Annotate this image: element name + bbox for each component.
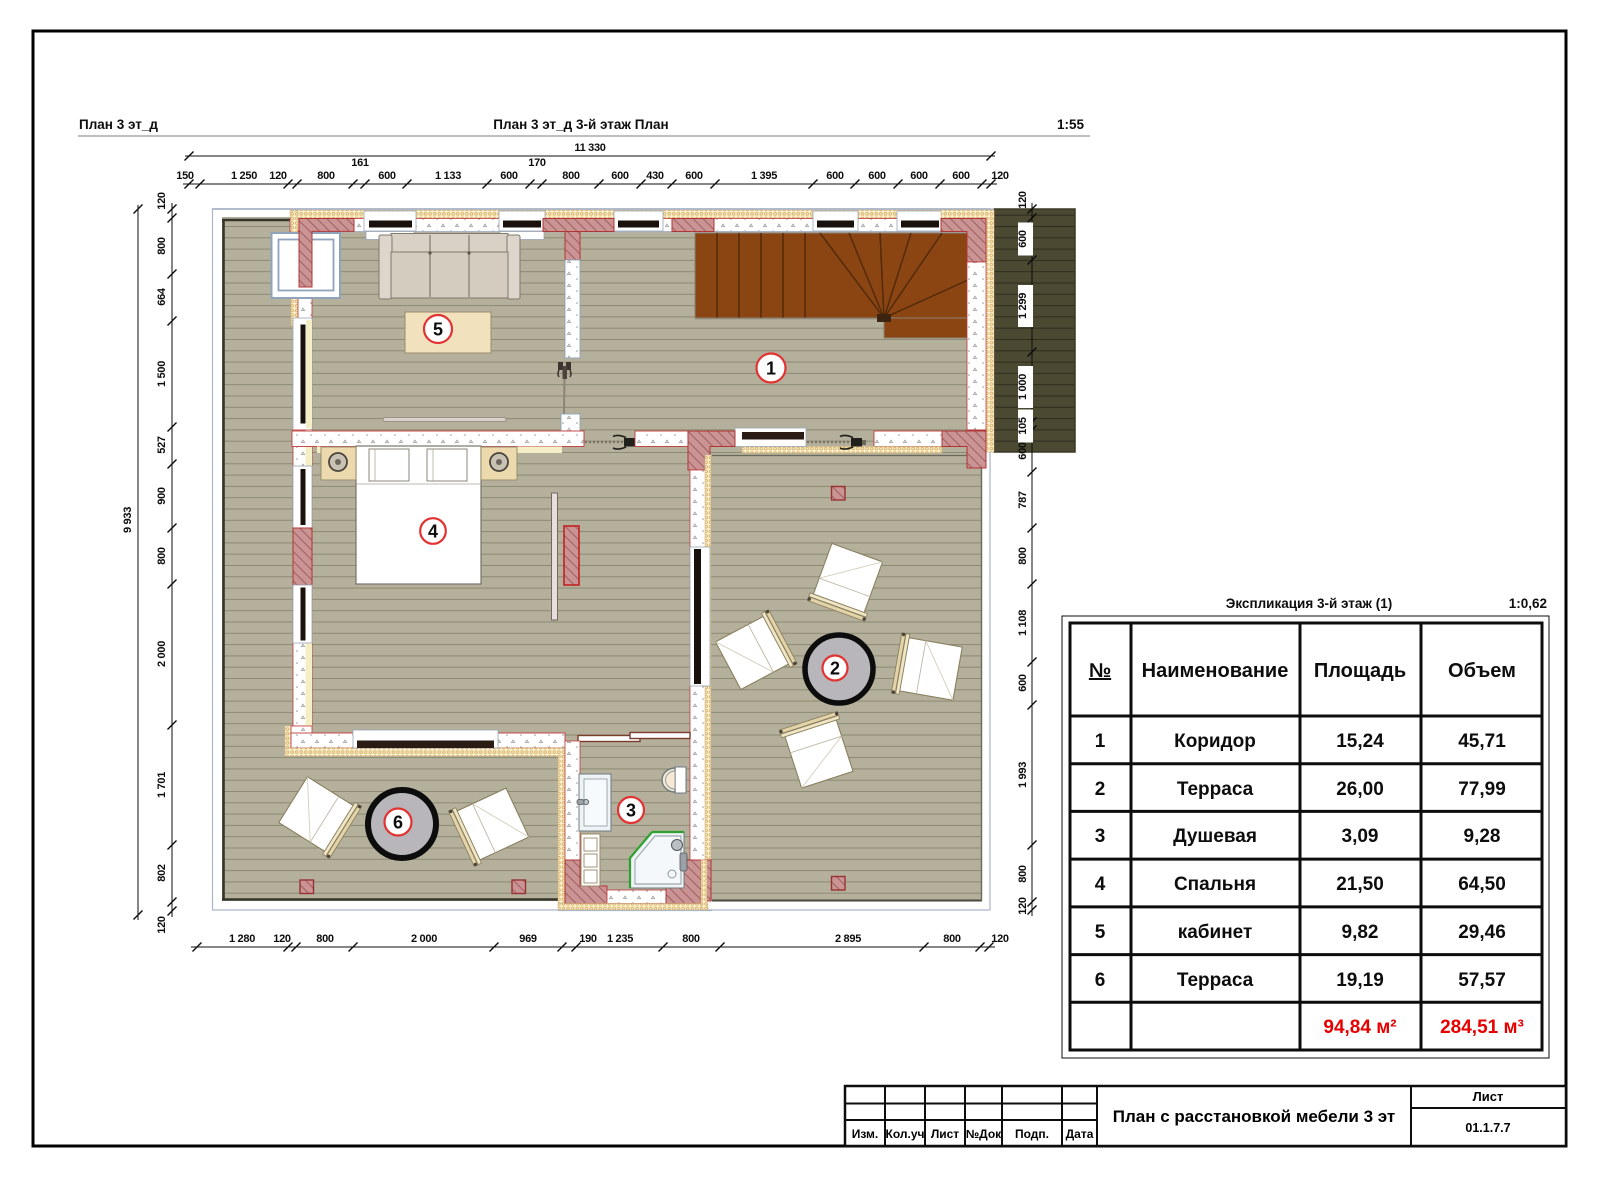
svg-text:120: 120 [156,192,168,210]
svg-text:900: 900 [156,487,168,505]
svg-text:800: 800 [317,170,335,182]
svg-text:15,24: 15,24 [1336,731,1384,752]
svg-text:Площадь: Площадь [1314,660,1406,682]
svg-text:120: 120 [1017,897,1029,915]
svg-text:29,46: 29,46 [1458,922,1506,943]
svg-text:Лист: Лист [931,1127,959,1141]
svg-text:Кол.уч: Кол.уч [886,1127,925,1141]
svg-text:800: 800 [156,547,168,565]
svg-text:120: 120 [1017,191,1029,209]
svg-text:800: 800 [1017,865,1029,883]
svg-text:77,99: 77,99 [1458,779,1506,800]
svg-text:1 235: 1 235 [607,933,633,945]
svg-text:9,82: 9,82 [1342,922,1379,943]
svg-text:600: 600 [1017,230,1029,248]
svg-text:3,09: 3,09 [1342,826,1379,847]
svg-text:План с расстановкой мебели 3 э: План с расстановкой мебели 3 эт [1113,1107,1396,1126]
svg-text:Экспликация 3-й этаж (1): Экспликация 3-й этаж (1) [1226,596,1392,611]
svg-text:11 330: 11 330 [574,142,605,154]
svg-text:800: 800 [156,237,168,255]
svg-text:1:55: 1:55 [1057,117,1085,132]
svg-text:Терраса: Терраса [1177,779,1254,800]
svg-text:2: 2 [830,659,840,679]
svg-text:Наименование: Наименование [1142,660,1289,682]
svg-text:№Док: №Док [966,1127,1002,1141]
svg-text:19,19: 19,19 [1336,970,1384,991]
svg-text:150: 150 [176,170,194,182]
svg-text:4: 4 [428,522,438,542]
svg-text:5: 5 [1095,922,1106,943]
svg-text:120: 120 [991,170,1009,182]
svg-text:802: 802 [156,864,168,882]
svg-text:6: 6 [393,813,403,833]
svg-text:57,57: 57,57 [1458,970,1506,991]
svg-text:2 000: 2 000 [156,641,168,667]
svg-text:Спальня: Спальня [1174,874,1256,895]
svg-text:21,50: 21,50 [1336,874,1384,895]
svg-text:1: 1 [766,359,776,379]
svg-text:кабинет: кабинет [1178,922,1253,943]
svg-text:01.1.7.7: 01.1.7.7 [1465,1121,1510,1135]
svg-text:5: 5 [433,320,443,340]
svg-text:600: 600 [868,170,886,182]
svg-text:1: 1 [1095,731,1106,752]
svg-text:170: 170 [528,157,546,169]
svg-text:Терраса: Терраса [1177,970,1254,991]
svg-text:4: 4 [1095,874,1106,895]
svg-text:64,50: 64,50 [1458,874,1506,895]
svg-text:3: 3 [1095,826,1106,847]
svg-text:1 299: 1 299 [1017,293,1029,319]
svg-text:600: 600 [1017,442,1029,460]
svg-text:120: 120 [269,170,287,182]
svg-text:2 895: 2 895 [835,933,861,945]
svg-text:800: 800 [1017,547,1029,565]
svg-text:120: 120 [156,916,168,934]
svg-text:94,84 м²: 94,84 м² [1323,1017,1396,1038]
svg-text:800: 800 [943,933,961,945]
svg-text:2: 2 [1095,779,1106,800]
svg-text:Подп.: Подп. [1015,1127,1049,1141]
svg-text:План 3 эт_д 3-й этаж План: План 3 эт_д 3-й этаж План [493,117,668,132]
svg-text:600: 600 [685,170,703,182]
svg-text:600: 600 [1017,674,1029,692]
svg-text:969: 969 [519,933,537,945]
svg-text:161: 161 [351,157,369,169]
svg-text:2 000: 2 000 [411,933,437,945]
svg-text:120: 120 [273,933,291,945]
svg-text:1 395: 1 395 [751,170,777,182]
svg-text:120: 120 [991,933,1009,945]
svg-text:664: 664 [156,287,168,306]
svg-text:527: 527 [156,436,168,454]
svg-text:№: № [1089,660,1111,682]
svg-text:800: 800 [682,933,700,945]
svg-text:9 933: 9 933 [122,507,134,533]
svg-text:600: 600 [910,170,928,182]
svg-text:787: 787 [1017,491,1029,509]
svg-text:800: 800 [562,170,580,182]
svg-text:1 500: 1 500 [156,361,168,387]
svg-text:600: 600 [500,170,518,182]
svg-text:9,28: 9,28 [1464,826,1501,847]
svg-text:Дата: Дата [1066,1127,1094,1141]
svg-text:1 108: 1 108 [1017,610,1029,636]
svg-text:600: 600 [378,170,396,182]
svg-text:1:0,62: 1:0,62 [1509,596,1547,611]
svg-text:190: 190 [579,933,597,945]
svg-text:Объем: Объем [1448,660,1516,682]
svg-text:1 133: 1 133 [435,170,461,182]
svg-text:600: 600 [952,170,970,182]
svg-text:105: 105 [1017,417,1029,435]
svg-text:Изм.: Изм. [852,1127,879,1141]
svg-text:Коридор: Коридор [1174,731,1256,752]
svg-text:45,71: 45,71 [1458,731,1506,752]
svg-text:6: 6 [1095,970,1106,991]
svg-text:284,51 м³: 284,51 м³ [1440,1017,1524,1038]
svg-text:Душевая: Душевая [1173,826,1257,847]
svg-text:800: 800 [316,933,334,945]
svg-text:1 280: 1 280 [229,933,255,945]
svg-text:600: 600 [826,170,844,182]
svg-text:1 701: 1 701 [156,772,168,798]
svg-text:1 000: 1 000 [1017,374,1029,400]
svg-text:430: 430 [646,170,664,182]
svg-text:26,00: 26,00 [1336,779,1384,800]
svg-text:Лист: Лист [1473,1089,1504,1104]
svg-text:1 250: 1 250 [231,170,257,182]
svg-text:600: 600 [611,170,629,182]
svg-text:3: 3 [626,801,636,821]
svg-text:План 3 эт_д: План 3 эт_д [79,117,158,132]
svg-text:1 993: 1 993 [1017,762,1029,788]
